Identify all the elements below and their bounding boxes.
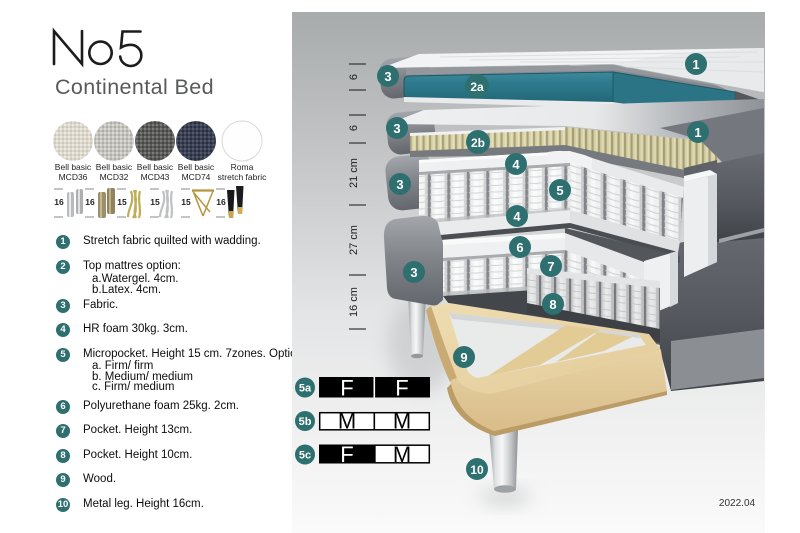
svg-text:27 cm: 27 cm <box>348 225 360 255</box>
svg-text:6: 6 <box>516 240 523 255</box>
svg-text:9: 9 <box>460 350 467 365</box>
svg-text:F: F <box>340 442 353 467</box>
svg-text:5: 5 <box>556 183 563 198</box>
svg-text:7: 7 <box>547 259 554 274</box>
svg-text:16 cm: 16 cm <box>348 287 360 317</box>
svg-text:F: F <box>340 376 353 401</box>
svg-text:10: 10 <box>470 463 484 477</box>
svg-text:3: 3 <box>396 177 403 192</box>
svg-text:3: 3 <box>393 121 400 136</box>
svg-text:6: 6 <box>348 125 360 131</box>
svg-text:21 cm: 21 cm <box>348 158 360 188</box>
svg-text:2b: 2b <box>471 136 485 150</box>
svg-text:M: M <box>338 409 356 434</box>
svg-text:3: 3 <box>410 265 417 280</box>
svg-text:4: 4 <box>512 157 520 172</box>
svg-text:M: M <box>393 409 411 434</box>
svg-text:5c: 5c <box>299 450 311 462</box>
svg-text:3: 3 <box>384 69 391 84</box>
svg-text:2022.04: 2022.04 <box>719 498 756 509</box>
svg-text:5b: 5b <box>299 416 312 428</box>
svg-text:F: F <box>395 376 408 401</box>
svg-text:M: M <box>393 442 411 467</box>
svg-text:8: 8 <box>549 297 556 312</box>
svg-text:1: 1 <box>692 57 699 72</box>
svg-text:6: 6 <box>348 74 360 80</box>
svg-text:2a: 2a <box>470 80 484 94</box>
svg-text:5a: 5a <box>299 383 312 395</box>
svg-text:1: 1 <box>694 125 701 140</box>
svg-text:4: 4 <box>513 209 521 224</box>
